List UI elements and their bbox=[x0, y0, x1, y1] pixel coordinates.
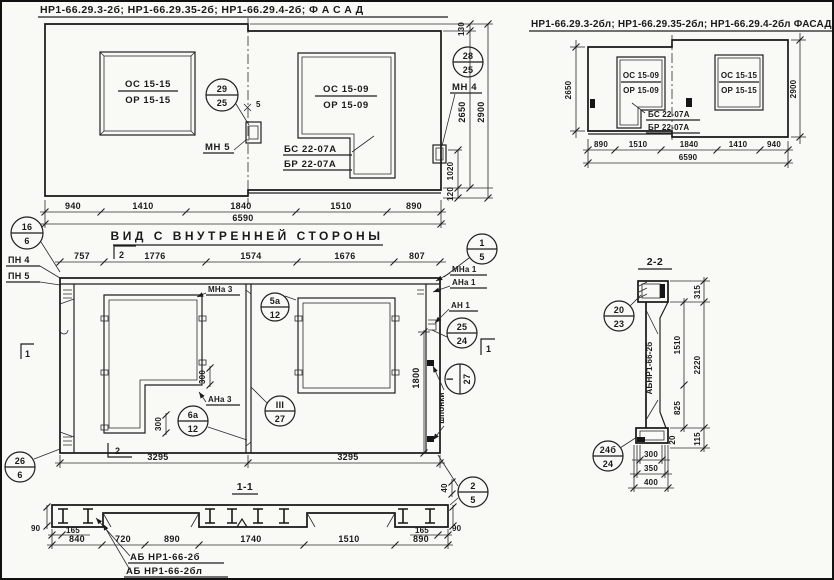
inner-dims-bottom: 3295 3295 bbox=[55, 452, 445, 468]
mirror-window-left: ОС 15-09 ОР 15-09 БС 22-07А БР 22-07А bbox=[617, 57, 700, 133]
dim: 1840 bbox=[680, 140, 699, 149]
dim: 3295 bbox=[147, 452, 168, 462]
section-label: 1 bbox=[486, 344, 491, 354]
label-mna3: МНа 3 bbox=[208, 285, 233, 294]
dim: 1574 bbox=[240, 251, 261, 261]
section-2-2-dims-bottom: 300 350 400 bbox=[628, 445, 674, 492]
dim: 890 bbox=[413, 534, 429, 544]
dim: 1510 bbox=[338, 534, 359, 544]
label-ana3: АНа 3 bbox=[208, 395, 232, 404]
dim-90: 90 bbox=[31, 524, 41, 533]
dim: 825 bbox=[673, 401, 682, 415]
section-label: 1 bbox=[25, 349, 30, 359]
section-2-2-body: АБНР1-66-2б bbox=[636, 281, 668, 443]
facade-drawing: НР1-66.29.3-2б; НР1-66.29.35-2б; НР1-66.… bbox=[38, 4, 493, 228]
dim: 1510 bbox=[629, 140, 648, 149]
detail-callout-I-27: I 27 bbox=[445, 364, 475, 394]
balcony-mark: БС 22-07А bbox=[648, 110, 690, 119]
dim: 890 bbox=[164, 534, 180, 544]
section-marker-2-bottom: 2 bbox=[108, 443, 132, 457]
section-marker-2-top: 2 bbox=[114, 246, 136, 260]
section-2-2-dims-right: 1510 825 20 315 2220 115 bbox=[668, 277, 710, 452]
dim: 890 bbox=[406, 201, 422, 211]
window-mark: ОС 15-09 bbox=[623, 71, 660, 80]
callout-sheet: 5 bbox=[479, 252, 484, 262]
gap-mark bbox=[244, 104, 251, 111]
dim: 400 bbox=[644, 478, 658, 487]
section-1-1-drawing: 1-1 90 90 165 165 840 72 bbox=[31, 481, 462, 577]
inner-panel-outline bbox=[60, 278, 440, 453]
dim: 1740 bbox=[240, 534, 261, 544]
embed-mark bbox=[686, 98, 692, 107]
section-title: 2-2 bbox=[647, 256, 663, 268]
facade-mirror-title: НР1-66.29.3-2бл; НР1-66.29.35-2бл; НР1-6… bbox=[531, 18, 832, 30]
callout-num: 5а bbox=[270, 296, 281, 306]
facade-mirror-drawing: НР1-66.29.3-2бл; НР1-66.29.35-2бл; НР1-6… bbox=[529, 18, 832, 168]
callout-sheet: 5 bbox=[470, 495, 475, 505]
window-mark: ОС 15-15 bbox=[721, 71, 758, 80]
key-notch bbox=[237, 519, 247, 527]
dim-300-leg: 300 bbox=[154, 412, 170, 437]
gap-dim: 5 bbox=[256, 100, 261, 109]
detail-callout-III-27: III 27 bbox=[251, 387, 295, 426]
dim: 1676 bbox=[334, 251, 355, 261]
detail-callout-25-24: 25 24 bbox=[432, 318, 477, 348]
dim: 1840 bbox=[230, 201, 251, 211]
balcony-mark: БР 22-07А bbox=[284, 159, 336, 170]
section-marker-1-right: 1 bbox=[481, 339, 495, 355]
dim: 40 bbox=[440, 483, 449, 493]
dim: 300 bbox=[198, 370, 207, 384]
dim-total: 6590 bbox=[679, 153, 698, 162]
dim-total: 6590 bbox=[232, 213, 253, 223]
callout-sheet: 24 bbox=[603, 459, 614, 469]
section-title: 1-1 bbox=[237, 481, 253, 493]
callout-num: I bbox=[445, 378, 455, 381]
dim: 940 bbox=[65, 201, 81, 211]
detail-callout-26-6: 26 6 bbox=[5, 449, 60, 482]
detail-callout-6a-12: 6а 12 bbox=[178, 406, 247, 440]
section-marker-1-left: 1 bbox=[21, 344, 34, 359]
dim-130: 130 bbox=[457, 22, 466, 36]
callout-num: 28 bbox=[463, 51, 474, 61]
callout-num: 29 bbox=[217, 84, 228, 94]
inner-view-drawing: 16 6 ПН 4 ПН 5 ВИД С ВНУТРЕННЕЙ СТОРОНЫ … bbox=[5, 217, 497, 507]
dim-2650: 2650 bbox=[457, 101, 467, 122]
dim: 300 bbox=[644, 450, 658, 459]
label-an1: АН 1 bbox=[451, 301, 470, 310]
window-mark: ОС 15-15 bbox=[125, 79, 171, 90]
dim: 2220 bbox=[693, 355, 702, 374]
dim-1020: 1020 bbox=[446, 161, 455, 180]
dim-40: 40 bbox=[440, 479, 456, 498]
facade-title: НР1-66.29.3-2б; НР1-66.29.35-2б; НР1-66.… bbox=[40, 4, 364, 16]
callout-sheet: 12 bbox=[270, 310, 281, 320]
svg-text:шпонки: шпонки bbox=[437, 392, 446, 423]
callout-sheet: 25 bbox=[463, 65, 474, 75]
panel-mark: АБНР1-66-2б bbox=[645, 342, 654, 395]
layer-label-pn4: ПН 4 bbox=[8, 255, 30, 265]
dim: 1510 bbox=[673, 335, 682, 354]
facade-window-left: ОС 15-15 ОР 15-15 bbox=[100, 52, 195, 135]
callout-num: 6а bbox=[188, 410, 199, 420]
dim: 20 bbox=[668, 435, 677, 445]
balcony-mark: БС 22-07А bbox=[284, 144, 337, 155]
inner-window-right bbox=[295, 298, 399, 393]
callout-sheet: 24 bbox=[457, 336, 468, 346]
detail-callout-24b-24: 24б 24 bbox=[593, 437, 637, 471]
window-mark: ОС 15-09 bbox=[323, 84, 369, 95]
dim: 115 bbox=[693, 432, 702, 446]
dim: 1410 bbox=[132, 201, 153, 211]
callout-num: 25 bbox=[457, 322, 468, 332]
dim: 1800 bbox=[411, 367, 421, 388]
detail-callout-2-5: 2 5 bbox=[438, 455, 488, 507]
dim-2900: 2900 bbox=[789, 79, 798, 98]
callout-num: 26 bbox=[15, 456, 26, 466]
dim: 890 bbox=[594, 140, 608, 149]
inner-view-title: ВИД С ВНУТРЕННЕЙ СТОРОНЫ bbox=[111, 228, 384, 243]
section-2-2-drawing: 2-2 АБНР1-66-2б 20 23 24б 24 bbox=[593, 256, 710, 492]
balcony-mark: БР 22-07А bbox=[648, 123, 689, 132]
detail-callout-20-23: 20 23 bbox=[604, 295, 641, 331]
dim: 300 bbox=[154, 417, 163, 431]
dim-2900: 2900 bbox=[476, 101, 486, 122]
facade-dims-bottom: 940 1410 1840 1510 890 6590 bbox=[40, 200, 446, 228]
dim: 1510 bbox=[330, 201, 351, 211]
dim: 1776 bbox=[144, 251, 165, 261]
section-label: 2 bbox=[119, 250, 124, 260]
label-ana1: АНа 1 bbox=[452, 278, 476, 287]
callout-num: III bbox=[276, 400, 284, 410]
dim: 757 bbox=[74, 251, 90, 261]
dim: 315 bbox=[693, 285, 702, 299]
callout-sheet: 27 bbox=[275, 414, 286, 424]
callout-sheet: 12 bbox=[188, 424, 199, 434]
blueprint-canvas: НР1-66.29.3-2б; НР1-66.29.35-2б; НР1-66.… bbox=[0, 0, 834, 580]
dim: 940 bbox=[767, 140, 781, 149]
window-mark: ОР 15-15 bbox=[125, 95, 171, 106]
panel-mark: АБ НР1-66-2бл bbox=[126, 566, 202, 577]
dim: 807 bbox=[409, 251, 425, 261]
detail-callout-29-25: 29 25 bbox=[206, 79, 249, 125]
callout-num: 24б bbox=[600, 445, 617, 455]
dim: 3295 bbox=[337, 452, 358, 462]
dim: 840 bbox=[69, 534, 85, 544]
embed-label: МН 5 bbox=[205, 142, 230, 153]
embed-label: МН 4 bbox=[452, 82, 477, 93]
callout-num: 1 bbox=[479, 238, 484, 248]
window-mark: ОР 15-15 bbox=[721, 86, 757, 95]
callout-sheet: 6 bbox=[24, 236, 29, 246]
label-mna1: МНа 1 bbox=[452, 265, 477, 274]
window-mark: ОР 15-09 bbox=[323, 100, 368, 111]
layer-label-pn5: ПН 5 bbox=[8, 271, 30, 281]
drawing-sheet: НР1-66.29.3-2б; НР1-66.29.35-2б; НР1-66.… bbox=[0, 0, 834, 580]
mirror-dims: 2650 2900 890 1510 1840 1410 940 6590 bbox=[564, 33, 806, 168]
callout-sheet: 23 bbox=[614, 319, 625, 329]
detail-callout-28-25: 28 25 bbox=[453, 47, 483, 77]
dim-120: 120 bbox=[446, 187, 455, 201]
callout-sheet: 6 bbox=[17, 470, 22, 480]
detail-callout-5a-12: 5а 12 bbox=[261, 293, 296, 321]
facade-window-right: ОС 15-09 ОР 15-09 БС 22-07А БР 22-07А bbox=[283, 53, 395, 178]
callout-sheet: 25 bbox=[217, 98, 228, 108]
callout-num: 16 bbox=[22, 222, 33, 232]
dim-300-step: 300 bbox=[198, 365, 214, 389]
embed-mark bbox=[590, 99, 595, 108]
window-mark: ОР 15-09 bbox=[623, 86, 659, 95]
dim: 1410 bbox=[729, 140, 748, 149]
dim-2650: 2650 bbox=[564, 80, 573, 99]
callout-num: 2 bbox=[470, 481, 475, 491]
callout-num: 20 bbox=[614, 305, 625, 315]
section-label: 2 bbox=[115, 446, 120, 456]
mirror-window-right: ОС 15-15 ОР 15-15 bbox=[715, 55, 763, 110]
panel-mark: АБ НР1-66-2б bbox=[130, 552, 200, 563]
callout-sheet: 27 bbox=[462, 374, 472, 385]
dim: 350 bbox=[644, 464, 658, 473]
